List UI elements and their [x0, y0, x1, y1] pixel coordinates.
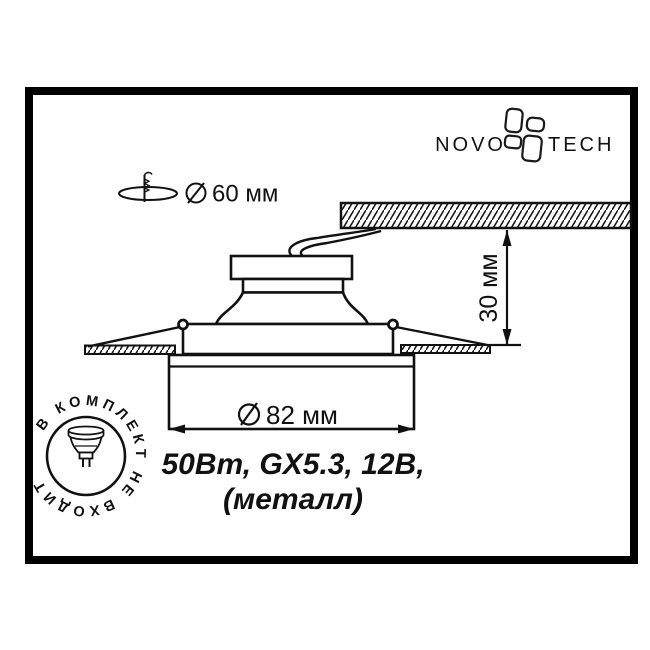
pivot-band [183, 324, 393, 354]
trim-diameter-label: 82 мм [266, 400, 338, 430]
brand-text-novo: NOVO [435, 134, 506, 156]
lamp-holder-neck [243, 279, 343, 293]
pivot-screw-right [389, 320, 398, 329]
fixture-dome [216, 293, 368, 325]
ceiling-section [341, 203, 631, 228]
junction-box [231, 256, 352, 279]
spec-line-2: (металл) [223, 483, 363, 516]
spec-line-1: 50Вт, GX5.3, 12В, [161, 448, 424, 481]
product-diagram-page: NOVO TECH 60 мм [0, 0, 650, 650]
depth-label: 30 мм [475, 253, 503, 322]
cutout-diameter-label: 60 мм [212, 181, 278, 208]
pivot-screw-left [179, 320, 188, 329]
ceiling-edge-left [85, 346, 175, 355]
ceiling-edge-right [401, 345, 490, 353]
brand-text-tech: TECH [548, 134, 614, 156]
technical-drawing: NOVO TECH 60 мм [0, 0, 650, 650]
